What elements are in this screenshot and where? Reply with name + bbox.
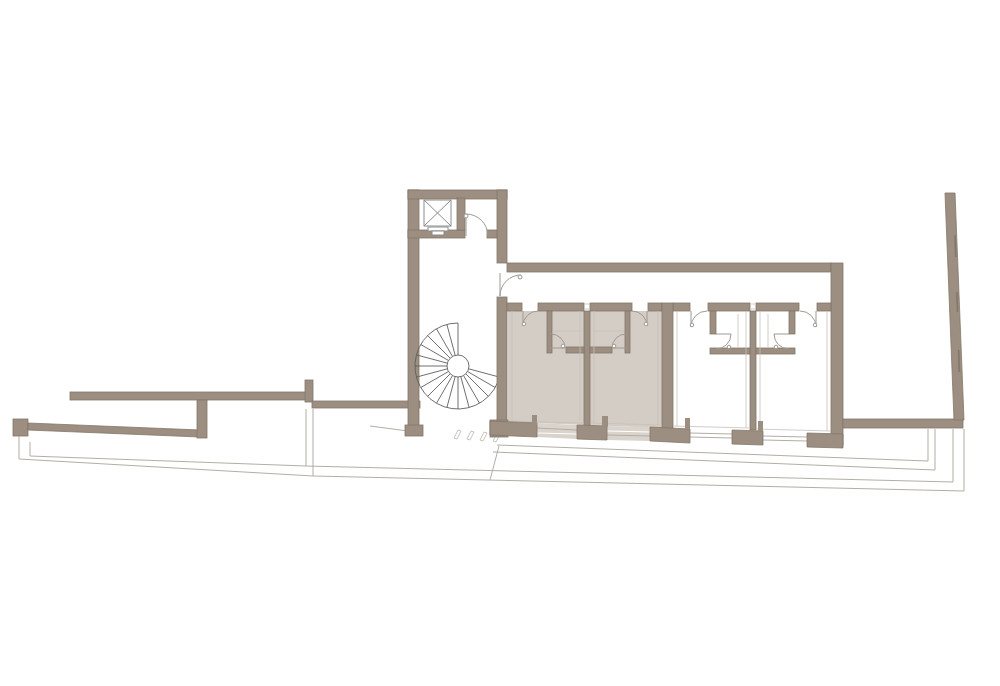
bath-wall	[547, 311, 552, 353]
stair-tread	[417, 355, 448, 363]
spiral-stair	[415, 323, 500, 409]
front-wall-seg	[817, 303, 831, 311]
partition-room2-room3	[662, 303, 673, 430]
bathroom-4	[756, 311, 795, 354]
pier	[650, 427, 690, 443]
tower-lobby-door	[464, 214, 488, 236]
elevator-side-wall	[457, 198, 465, 230]
courtyard-wall	[843, 419, 963, 428]
door-knob	[813, 323, 817, 327]
front-wall-seg	[590, 303, 632, 311]
room-4-entry-door	[800, 311, 817, 327]
door-swing	[466, 214, 488, 236]
pier	[732, 430, 763, 445]
bath-door-knob	[561, 344, 565, 348]
freestanding-slanted-wall	[945, 193, 964, 420]
door-knob	[644, 322, 648, 326]
front-wall-seg	[673, 303, 690, 311]
stair-tread	[447, 377, 455, 408]
garden-wall-end-block	[13, 419, 28, 436]
right-courtyard	[843, 193, 964, 428]
stair-tread	[447, 325, 455, 356]
door-knob	[464, 214, 468, 218]
glazing-bay-1	[537, 423, 577, 439]
window-jamb	[685, 418, 690, 429]
garden-wall-lower	[28, 423, 200, 437]
step-edge-diagonal	[490, 446, 499, 480]
stair-tread	[469, 369, 500, 377]
tower-corridor-door	[500, 273, 522, 296]
bath-wall	[789, 311, 795, 334]
stair-tread	[417, 369, 448, 377]
garden-wall-link	[312, 401, 420, 408]
front-wall-seg	[756, 303, 799, 311]
tower-wall-left	[408, 190, 419, 426]
floor-plan-canvas	[0, 0, 1000, 686]
tower-wall-right-upper	[497, 190, 507, 263]
door-knob	[522, 322, 526, 326]
garden-wall-stub	[305, 380, 313, 402]
partition-room1-room2	[584, 311, 590, 426]
stair-tread	[461, 377, 469, 408]
hatch-mark	[467, 431, 474, 440]
pier	[577, 425, 607, 440]
step-edge-to-tower	[370, 426, 408, 431]
garden-wall-riser	[197, 400, 207, 438]
window-jamb	[532, 415, 537, 425]
hatch-mark	[480, 432, 487, 441]
front-wall-seg	[538, 303, 584, 311]
window-jamb	[758, 421, 763, 431]
door-knob	[690, 323, 694, 327]
floor-plan-drawing	[0, 0, 1000, 686]
bath-wall	[590, 347, 612, 353]
glazing-bay-2	[607, 426, 650, 441]
bath-door-knob	[727, 345, 731, 349]
bathroom-3	[710, 311, 750, 354]
partition-room3-room4	[750, 311, 756, 430]
bath-wall	[566, 347, 584, 353]
front-wall-seg	[507, 303, 522, 311]
elevator-door-outer	[428, 227, 448, 231]
tower-wall-left-foot	[405, 425, 423, 436]
front-wall-seg	[648, 303, 662, 311]
bath-wall	[710, 311, 716, 334]
step-line-outer-left-2	[19, 436, 313, 476]
window-jamb	[602, 416, 608, 427]
pier	[807, 433, 843, 448]
spiral-newel	[447, 355, 469, 377]
wing-wall-top	[507, 263, 831, 272]
door-knob	[518, 275, 522, 279]
hatch-mark	[454, 430, 461, 439]
lobby-wall-piece	[487, 230, 497, 238]
bath-wall	[625, 311, 630, 353]
left-garden-walls	[13, 380, 420, 438]
elevator-door-inner	[432, 231, 444, 235]
garden-wall-upper	[70, 392, 307, 400]
wing-wall-left	[497, 297, 507, 422]
elevator	[424, 200, 451, 235]
pier	[490, 421, 537, 437]
bath-door-knob	[612, 344, 616, 348]
front-wall-seg	[708, 303, 750, 311]
room-3-entry-door	[690, 311, 707, 327]
bath-door-knob	[774, 345, 778, 349]
wing-wall-right	[831, 263, 843, 445]
